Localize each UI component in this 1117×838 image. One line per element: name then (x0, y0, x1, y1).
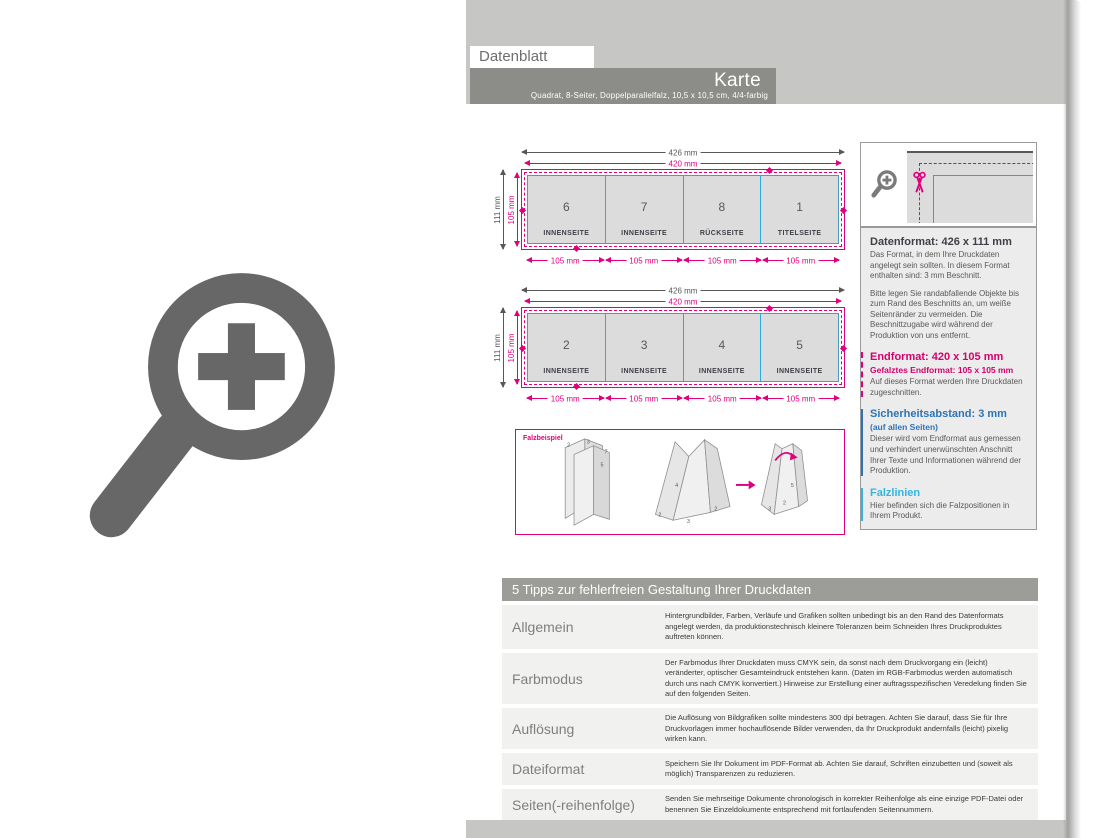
fold-page-number: 7 (604, 450, 607, 456)
bleed-mark (840, 206, 847, 213)
dim-panel-width: 105 mm (683, 256, 762, 266)
fold-page-number: 5 (601, 462, 604, 468)
panel-label: INNENSEITE (621, 230, 667, 237)
datenblatt-tab: Datenblatt (470, 46, 594, 68)
dimension-value: 426 mm (666, 286, 701, 295)
tip-label: Auflösung (502, 708, 665, 749)
dim-total-width: 426 mm (521, 148, 845, 157)
section-endformat: Endformat: 420 x 105 mm Gefalztes Endfor… (861, 351, 1030, 398)
tip-row: Auflösung Die Auflösung von Bildgrafiken… (502, 708, 1038, 749)
panel-cell: 2 INNENSEITE (528, 314, 605, 381)
section-datenformat: Datenformat: 426 x 111 mm Das Format, in… (861, 236, 1030, 341)
dimension-value: 420 mm (666, 297, 701, 306)
page-edge-shadow (1063, 0, 1081, 838)
panel-number: 4 (719, 338, 726, 352)
dimension-line (517, 173, 518, 246)
dim-panel-width: 105 mm (526, 256, 605, 266)
sheet-outline: 2 INNENSEITE 3 INNENSEITE 4 INNENSEITE 5… (521, 307, 845, 388)
dim-panel-widths: 105 mm 105 mm 105 mm 105 mm (526, 394, 840, 404)
format-info-panel: Datenformat: 426 x 111 mm Das Format, in… (860, 227, 1037, 530)
panel-label: INNENSEITE (699, 368, 745, 375)
dimension-value: 111 mm (493, 194, 502, 226)
arrow-right-icon (736, 481, 756, 490)
bleed-mark (519, 206, 526, 213)
panel-number: 7 (641, 200, 648, 214)
dimension-value: 105 mm (705, 395, 740, 404)
dimension-line (503, 308, 504, 387)
zoom-button[interactable] (85, 242, 360, 567)
panel-cell: 7 INNENSEITE (605, 176, 683, 243)
dim-panel-width: 105 mm (605, 394, 684, 404)
bleed-mark (840, 344, 847, 351)
fold-page-number: 2 (658, 512, 661, 518)
dim-panel-width: 105 mm (683, 394, 762, 404)
panel-number: 1 (796, 200, 803, 214)
tip-label: Farbmodus (502, 653, 665, 704)
dimension-value: 105 mm (548, 395, 583, 404)
tips-header: 5 Tipps zur fehlerfreien Gestaltung Ihre… (502, 578, 1038, 601)
product-title: Karte (714, 70, 761, 92)
sheet-outline: 6 INNENSEITE 7 INNENSEITE 8 RÜCKSEITE 1 … (521, 169, 845, 250)
tip-text: Der Farbmodus Ihrer Druckdaten muss CMYK… (665, 653, 1038, 704)
endformat-subheading: Gefalztes Endformat: 105 x 105 mm (870, 365, 1030, 375)
magnifier-plus-icon (871, 167, 899, 201)
falzlinien-heading: Falzlinien (870, 487, 1030, 499)
magnifier-plus-icon (85, 242, 360, 567)
panel-cell: 1 TITELSEITE (760, 176, 838, 243)
scissors-icon (912, 171, 927, 194)
tip-text: Die Auflösung von Bildgrafiken sollte mi… (665, 708, 1038, 749)
sicherheitsabstand-text: Dieser wird vom Endformat aus gemessen u… (870, 434, 1030, 476)
section-falzlinien: Falzlinien Hier befinden sich die Falzpo… (861, 487, 1030, 522)
panel-cell: 5 INNENSEITE (760, 314, 838, 381)
bleed-mark (766, 305, 773, 312)
dimension-value: 105 mm (507, 193, 516, 226)
panel-number: 3 (641, 338, 648, 352)
fold-page-number: 3 (587, 440, 590, 446)
zoom-detail-box (860, 142, 1037, 227)
tip-label: Allgemein (502, 605, 665, 649)
fold-page-number: 2 (567, 443, 570, 449)
tip-row: Dateiformat Speichern Sie Ihr Dokument i… (502, 753, 1038, 785)
tip-text: Speichern Sie Ihr Dokument im PDF-Format… (665, 753, 1038, 785)
dimension-value: 105 mm (705, 257, 740, 266)
fold-example-illustration: 2 3 7 5 4 2 3 2 5 2 3 (516, 430, 844, 534)
fold-page-number: 3 (768, 506, 771, 512)
endformat-text: Auf dieses Format werden Ihre Druckdaten… (870, 377, 1030, 398)
section-sicherheitsabstand: Sicherheitsabstand: 3 mm (auf allen Seit… (861, 408, 1030, 476)
dim-panel-widths: 105 mm 105 mm 105 mm 105 mm (526, 256, 840, 266)
datenformat-text-2: Bitte legen Sie randabfallende Objekte b… (870, 289, 1030, 342)
panel-label: INNENSEITE (543, 368, 589, 375)
dimension-value: 426 mm (666, 148, 701, 157)
bleed-mark (766, 167, 773, 174)
panel-number: 2 (563, 338, 570, 352)
sheet-panels: 6 INNENSEITE 7 INNENSEITE 8 RÜCKSEITE 1 … (527, 175, 839, 244)
tip-row: Farbmodus Der Farbmodus Ihrer Druckdaten… (502, 653, 1038, 704)
datenformat-text-1: Das Format, in dem Ihre Druckdaten angel… (870, 250, 1030, 282)
panel-number: 6 (563, 200, 570, 214)
datasheet-page: Datenblatt Karte Quadrat, 8-Seiter, Dopp… (0, 0, 1117, 838)
dimension-value: 105 mm (626, 257, 661, 266)
fold-page-number: 5 (791, 483, 794, 489)
tip-label: Seiten(-reihenfolge) (502, 789, 665, 820)
sicherheitsabstand-heading: Sicherheitsabstand: 3 mm (870, 408, 1030, 420)
tip-text: Hintergrundbilder, Farben, Verläufe und … (665, 605, 1038, 649)
tip-row: Seiten(-reihenfolge) Senden Sie mehrseit… (502, 789, 1038, 820)
dim-panel-width: 105 mm (605, 256, 684, 266)
fold-page-number: 2 (783, 501, 786, 507)
dimension-line (517, 311, 518, 384)
endformat-heading: Endformat: 420 x 105 mm (870, 351, 1030, 363)
tip-row: Allgemein Hintergrundbilder, Farben, Ver… (502, 605, 1038, 649)
tips-section: 5 Tipps zur fehlerfreien Gestaltung Ihre… (502, 578, 1038, 820)
bleed-mark (519, 344, 526, 351)
tip-label: Dateiformat (502, 753, 665, 785)
bleed-mark (572, 383, 579, 390)
panel-cell: 4 INNENSEITE (683, 314, 761, 381)
fold-page-number: 2 (714, 506, 717, 512)
panel-label: INNENSEITE (777, 368, 823, 375)
dimension-value: 105 mm (626, 395, 661, 404)
sheet-diagram-outer: 426 mm 420 mm 111 mm 105 mm 6 INNENSEITE… (490, 146, 850, 270)
dimension-value: 105 mm (548, 257, 583, 266)
panel-number: 5 (796, 338, 803, 352)
panel-cell: 3 INNENSEITE (605, 314, 683, 381)
dimension-value: 105 mm (783, 395, 818, 404)
safety-line (933, 175, 1033, 223)
panel-label: INNENSEITE (543, 230, 589, 237)
panel-label: TITELSEITE (778, 230, 822, 237)
sheet-diagram-inner: 426 mm 420 mm 111 mm 105 mm 2 INNENSEITE… (490, 284, 850, 408)
dim-trim-width: 420 mm (524, 159, 842, 168)
dimension-value: 420 mm (666, 159, 701, 168)
dim-panel-width: 105 mm (526, 394, 605, 404)
panel-label: RÜCKSEITE (700, 230, 744, 237)
panel-label: INNENSEITE (621, 368, 667, 375)
dimension-value: 105 mm (783, 257, 818, 266)
panel-cell: 6 INNENSEITE (528, 176, 605, 243)
fold-example-box: Falzbeispiel (515, 429, 845, 535)
product-subtitle: Quadrat, 8-Seiter, Doppelparallelfalz, 1… (531, 91, 768, 100)
datenformat-heading: Datenformat: 426 x 111 mm (870, 236, 1030, 248)
title-bar: Karte Quadrat, 8-Seiter, Doppelparallelf… (470, 68, 776, 104)
panel-number: 8 (719, 200, 726, 214)
sheet-panels: 2 INNENSEITE 3 INNENSEITE 4 INNENSEITE 5… (527, 313, 839, 382)
dim-panel-width: 105 mm (762, 394, 841, 404)
falzlinien-text: Hier befinden sich die Falzpositionen in… (870, 501, 1030, 522)
fold-page-number: 3 (687, 519, 690, 525)
dimension-line (503, 170, 504, 249)
tip-text: Senden Sie mehrseitige Dokumente chronol… (665, 789, 1038, 820)
dim-total-width: 426 mm (521, 286, 845, 295)
bleed-corner-diagram (907, 151, 1033, 223)
bleed-mark (572, 245, 579, 252)
fold-page-number: 4 (675, 483, 678, 489)
dim-panel-width: 105 mm (762, 256, 841, 266)
dim-trim-width: 420 mm (524, 297, 842, 306)
dimension-value: 111 mm (493, 332, 502, 364)
dimension-value: 105 mm (507, 331, 516, 364)
sicherheitsabstand-subheading: (auf allen Seiten) (870, 422, 1030, 432)
panel-cell: 8 RÜCKSEITE (683, 176, 761, 243)
